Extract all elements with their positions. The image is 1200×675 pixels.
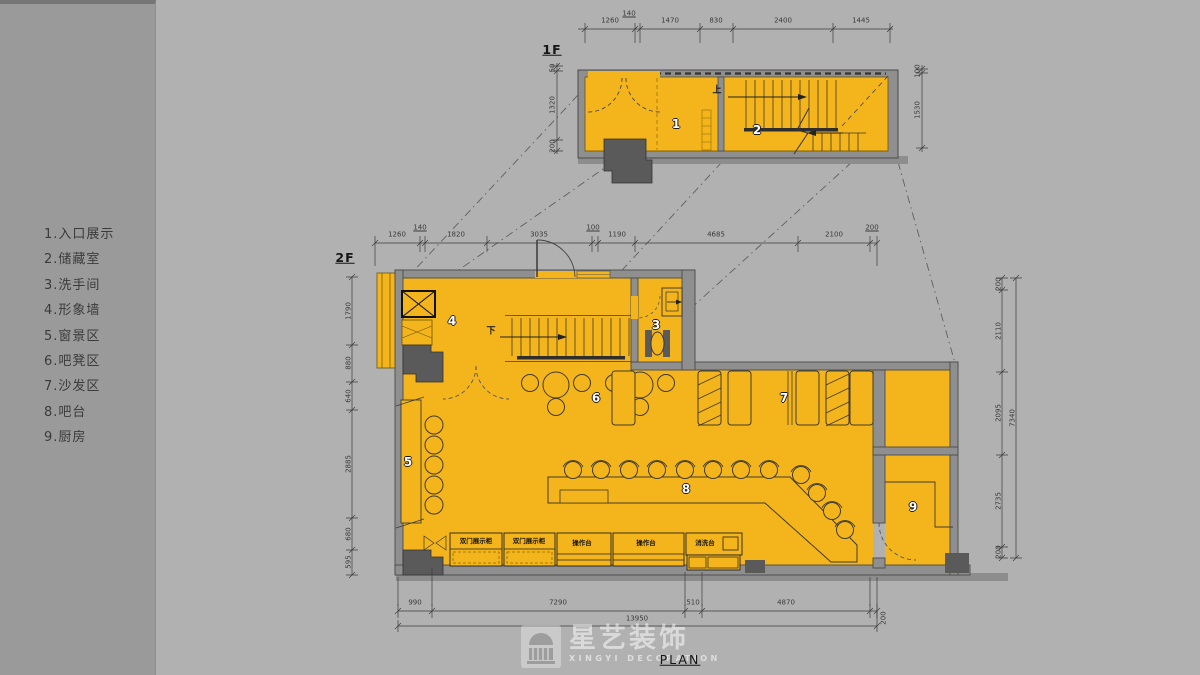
dim-label: 2100: [825, 232, 843, 239]
dim-label: 2400: [774, 18, 792, 25]
dim-label: 680: [346, 527, 353, 540]
dim-label: 7340: [1010, 409, 1017, 427]
dim-label: 140: [413, 225, 426, 232]
sheet-title: PLAN: [660, 654, 701, 667]
floor-plan-drawing: [0, 0, 1200, 675]
dim-label: 880: [346, 356, 353, 369]
dim-label: 2095: [996, 404, 1003, 422]
dim-label: 990: [408, 600, 421, 607]
floor-plan-2f: [377, 240, 1008, 581]
room-number-sofa: 7: [780, 392, 788, 404]
cabinet-label: 消洗台: [695, 540, 715, 547]
stair-rail: [517, 356, 625, 360]
cabinet-label: 双门展示柜: [513, 538, 546, 545]
dim-label: 1260: [601, 18, 619, 25]
room-number-bar: 8: [682, 483, 690, 495]
dim-label: 140: [622, 11, 635, 18]
dim-label: 510: [686, 600, 699, 607]
cabinet-strip: [702, 110, 711, 150]
floor-plan-1f: [578, 70, 908, 183]
dim-label: 100: [915, 64, 922, 77]
room-number-wc: 3: [652, 319, 660, 331]
room-number-entry: 1: [672, 118, 680, 130]
column: [945, 553, 969, 573]
dim-label: 200: [865, 225, 878, 232]
dim-label: 200: [996, 545, 1003, 558]
plan-title-2f: 2F: [335, 252, 354, 265]
dim-label: 1445: [852, 18, 870, 25]
dim-label: 50: [550, 64, 557, 73]
dim-label: 1820: [447, 232, 465, 239]
cabinet-label: 操作台: [572, 540, 592, 547]
drawing-sheet: 1.入口展示 2.储藏室 3.洗手间 4.形象墙 5.窗景区 6.吧凳区 7.沙…: [0, 0, 1200, 675]
dim-label: 2885: [346, 455, 353, 473]
room-number-feature: 4: [448, 315, 456, 327]
dim-label: 200: [550, 139, 557, 152]
stair-up-label: 上: [712, 87, 721, 96]
dim-label: 7290: [549, 600, 567, 607]
dim-label: 3035: [530, 232, 548, 239]
room-number-storage: 2: [753, 124, 761, 136]
dim-label: 100: [586, 225, 599, 232]
dim-label: 830: [709, 18, 722, 25]
dim-label: 2735: [996, 492, 1003, 510]
dim-label: 4685: [707, 232, 725, 239]
column: [604, 139, 652, 183]
logo-icon: [521, 625, 561, 668]
room-number-kitchen: 9: [909, 501, 917, 513]
dim-label: 1260: [388, 232, 406, 239]
room-number-window: 5: [404, 456, 412, 468]
plan-title-1f: 1F: [542, 44, 561, 57]
dim-label: 1190: [608, 232, 626, 239]
window-stools: [425, 416, 443, 514]
dim-label: 1790: [346, 302, 353, 320]
stair-down-label: 下: [486, 328, 495, 337]
dim-label: 200: [996, 277, 1003, 290]
dim-label: 2110: [996, 322, 1003, 340]
dim-label: 640: [346, 389, 353, 402]
cabinet-label: 操作台: [636, 540, 656, 547]
window-bay: [377, 273, 396, 368]
dim-label: 200: [881, 611, 888, 624]
dim-label: 595: [346, 555, 353, 568]
dim-label: 13950: [626, 616, 648, 623]
cabinet-label: 双门展示柜: [460, 538, 493, 545]
column: [745, 560, 765, 573]
dim-label: 1320: [550, 96, 557, 114]
room-number-stools: 6: [592, 392, 600, 404]
dim-label: 1470: [661, 18, 679, 25]
dim-label: 1530: [915, 101, 922, 119]
dim-label: 4870: [777, 600, 795, 607]
logo-name: 星艺装饰: [569, 625, 721, 652]
